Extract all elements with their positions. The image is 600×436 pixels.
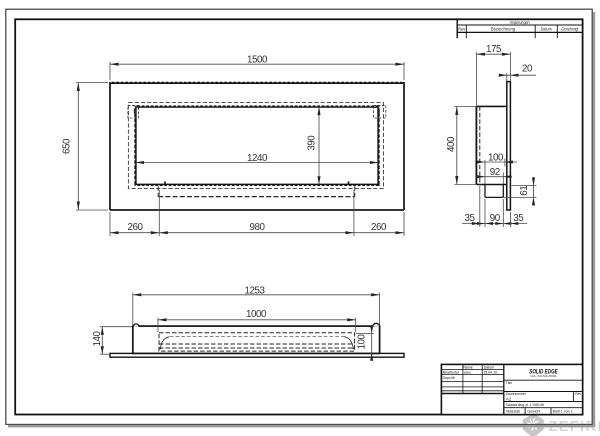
svg-text:Änderungen: Änderungen: [510, 19, 530, 25]
svg-text:Geprüft: Geprüft: [443, 376, 455, 380]
svg-text:175: 175: [486, 44, 502, 55]
svg-text:Datum: Datum: [484, 365, 495, 369]
svg-text:Rev: Rev: [458, 27, 466, 32]
svg-text:A2: A2: [506, 396, 512, 401]
svg-text:Blatt 1 von 1: Blatt 1 von 1: [553, 409, 573, 413]
svg-text:uwu: uwu: [464, 370, 471, 374]
svg-text:1000: 1000: [246, 309, 267, 320]
svg-text:980: 980: [250, 222, 266, 233]
svg-text:UGS - PLM SOLUTIONS: UGS - PLM SOLUTIONS: [531, 374, 557, 378]
svg-text:390: 390: [307, 135, 318, 151]
svg-text:61: 61: [519, 186, 530, 196]
svg-text:1240: 1240: [247, 153, 268, 164]
svg-text:Titel: Titel: [506, 381, 513, 385]
svg-text:15.04.10: 15.04.10: [483, 370, 497, 374]
svg-text:Rev: Rev: [575, 392, 581, 396]
svg-text:92: 92: [490, 167, 500, 178]
svg-text:35: 35: [465, 213, 476, 224]
svg-text:90: 90: [490, 213, 501, 224]
svg-text:1253: 1253: [245, 285, 266, 296]
svg-text:Scianka dlug. pl. 1 1500.dft: Scianka dlug. pl. 1 1500.dft: [506, 403, 544, 407]
svg-text:400: 400: [446, 136, 457, 152]
svg-text:Name: Name: [463, 365, 473, 369]
svg-text:Genehmigt: Genehmigt: [561, 27, 579, 32]
svg-text:260: 260: [128, 222, 144, 233]
svg-text:Bearbeitet: Bearbeitet: [443, 370, 459, 374]
svg-text:20: 20: [522, 64, 533, 75]
svg-text:Bezeichnung: Bezeichnung: [491, 27, 516, 32]
svg-text:1500: 1500: [247, 55, 268, 66]
svg-text:Datum: Datum: [541, 27, 552, 32]
svg-text:Gewicht: Gewicht: [527, 409, 540, 413]
svg-text:650: 650: [62, 138, 73, 154]
svg-text:100: 100: [357, 334, 368, 350]
svg-text:100: 100: [488, 152, 504, 163]
svg-text:Maßstab: Maßstab: [506, 409, 520, 413]
svg-text:140: 140: [92, 331, 103, 347]
svg-text:35: 35: [513, 213, 524, 224]
svg-text:260: 260: [371, 222, 387, 233]
